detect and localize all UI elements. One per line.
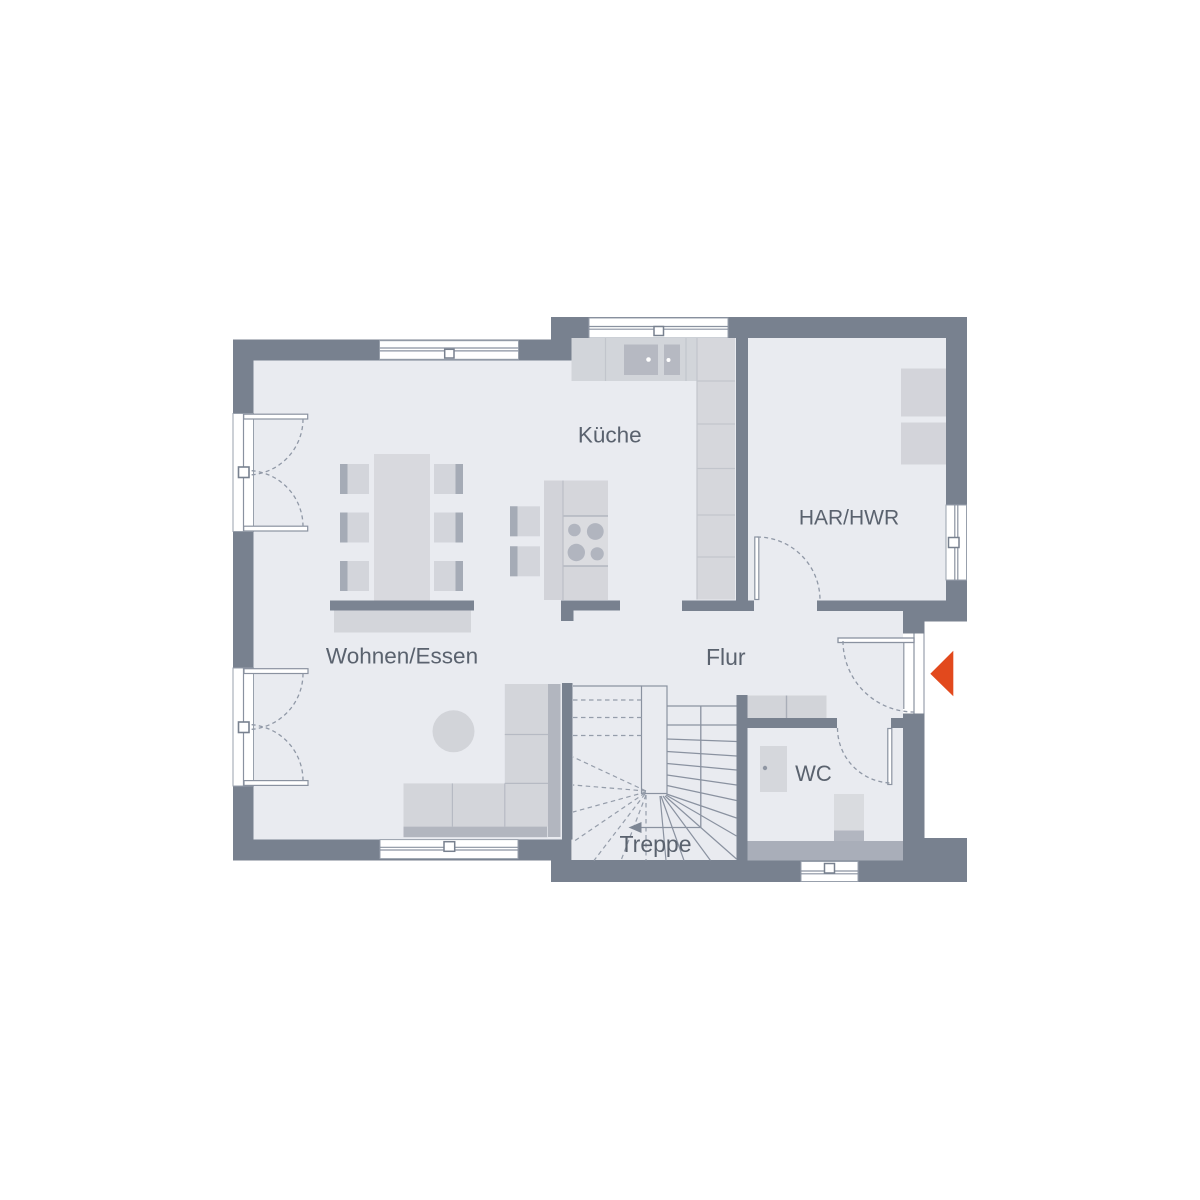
- svg-text:HAR/HWR: HAR/HWR: [799, 507, 899, 530]
- svg-text:Küche: Küche: [578, 423, 642, 448]
- svg-text:Wohnen/Essen: Wohnen/Essen: [326, 644, 478, 669]
- svg-text:WC: WC: [795, 761, 832, 786]
- svg-text:Treppe: Treppe: [619, 831, 691, 857]
- svg-text:Flur: Flur: [706, 644, 746, 670]
